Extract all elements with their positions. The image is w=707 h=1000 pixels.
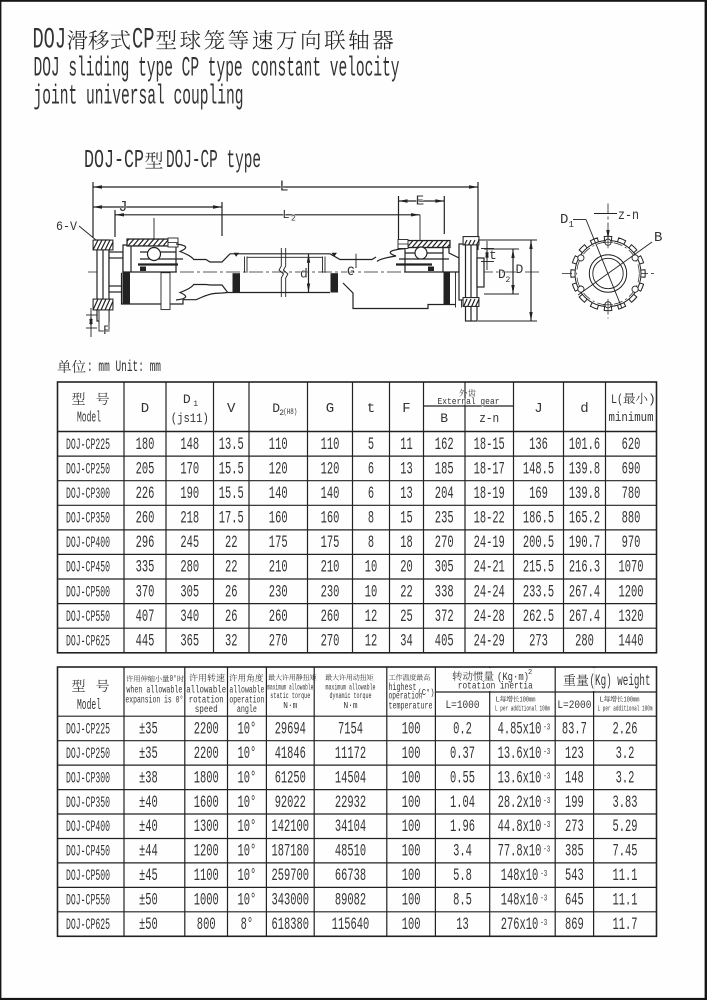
svg-text:24-24: 24-24 bbox=[474, 582, 505, 602]
svg-text:335: 335 bbox=[136, 558, 155, 578]
svg-text:1: 1 bbox=[569, 220, 574, 230]
svg-text:25: 25 bbox=[400, 607, 413, 627]
svg-text:±35: ±35 bbox=[139, 744, 158, 764]
svg-text:13: 13 bbox=[400, 484, 413, 504]
svg-text:temperature: temperature bbox=[389, 702, 433, 713]
svg-text:245: 245 bbox=[180, 533, 199, 553]
svg-text:169: 169 bbox=[529, 484, 548, 504]
svg-text:2.26: 2.26 bbox=[613, 719, 638, 739]
svg-text:15.5: 15.5 bbox=[219, 459, 244, 479]
svg-text:12: 12 bbox=[365, 632, 378, 652]
svg-text:273: 273 bbox=[565, 817, 584, 837]
svg-text:6: 6 bbox=[368, 459, 374, 479]
svg-text:L: L bbox=[282, 208, 289, 222]
svg-text:13: 13 bbox=[456, 915, 469, 935]
svg-text:110: 110 bbox=[269, 435, 288, 455]
svg-text:218: 218 bbox=[180, 509, 199, 529]
svg-text:-3: -3 bbox=[540, 918, 547, 928]
svg-text:G: G bbox=[326, 401, 334, 417]
svg-text:148x10: 148x10 bbox=[501, 866, 539, 886]
svg-text:10°: 10° bbox=[238, 793, 257, 813]
svg-text:DOJ-CP450: DOJ-CP450 bbox=[66, 559, 110, 577]
svg-text:13.6x10: 13.6x10 bbox=[498, 744, 542, 764]
svg-text:5.29: 5.29 bbox=[613, 817, 638, 837]
svg-text:13: 13 bbox=[400, 459, 413, 479]
svg-text:6: 6 bbox=[368, 484, 374, 504]
svg-text:160: 160 bbox=[321, 509, 340, 529]
svg-text:DOJ-CP300: DOJ-CP300 bbox=[66, 769, 110, 787]
svg-text:8.5: 8.5 bbox=[453, 891, 472, 911]
svg-text:t: t bbox=[489, 248, 497, 263]
svg-text:690: 690 bbox=[622, 459, 641, 479]
svg-text:±40: ±40 bbox=[139, 793, 158, 813]
svg-text:100: 100 bbox=[402, 817, 421, 837]
svg-text:1300: 1300 bbox=[194, 817, 219, 837]
svg-text:-3: -3 bbox=[543, 722, 550, 732]
svg-text:175: 175 bbox=[269, 533, 288, 553]
svg-text:190.7: 190.7 bbox=[569, 533, 600, 553]
svg-text:10°: 10° bbox=[238, 744, 257, 764]
svg-text:407: 407 bbox=[136, 607, 155, 627]
svg-text:1440: 1440 bbox=[619, 632, 644, 652]
svg-text:22: 22 bbox=[225, 533, 238, 553]
svg-text:L=2000: L=2000 bbox=[557, 700, 591, 712]
svg-text:372: 372 bbox=[435, 607, 454, 627]
svg-text:L: L bbox=[496, 697, 500, 705]
svg-text:22: 22 bbox=[225, 558, 238, 578]
svg-text:DOJ sliding type CP type const: DOJ sliding type CP type constant veloci… bbox=[34, 54, 400, 85]
svg-text:DOJ-CP350: DOJ-CP350 bbox=[66, 794, 110, 812]
svg-text:1: 1 bbox=[193, 400, 198, 409]
svg-text:±44: ±44 bbox=[139, 842, 158, 862]
svg-text:41846: 41846 bbox=[275, 744, 306, 764]
svg-text:Model: Model bbox=[77, 697, 101, 714]
svg-text:-3: -3 bbox=[543, 771, 550, 781]
svg-text:100: 100 bbox=[402, 719, 421, 739]
svg-text:±40: ±40 bbox=[139, 817, 158, 837]
svg-text:385: 385 bbox=[565, 842, 584, 862]
svg-text:10°: 10° bbox=[238, 891, 257, 911]
svg-text:120: 120 bbox=[321, 459, 340, 479]
svg-text:11: 11 bbox=[400, 435, 413, 455]
svg-text:34: 34 bbox=[400, 632, 413, 652]
svg-text:233.5: 233.5 bbox=[523, 582, 554, 602]
svg-text:162: 162 bbox=[435, 435, 454, 455]
svg-text:3.83: 3.83 bbox=[613, 793, 638, 813]
svg-text:445: 445 bbox=[136, 632, 155, 652]
svg-text:angle: angle bbox=[237, 704, 257, 716]
svg-text:24-21: 24-21 bbox=[474, 558, 505, 578]
svg-text:10°: 10° bbox=[238, 842, 257, 862]
svg-text:18: 18 bbox=[400, 533, 413, 553]
svg-text:1200: 1200 bbox=[619, 582, 644, 602]
svg-text:34104: 34104 bbox=[335, 817, 366, 837]
svg-text:24-28: 24-28 bbox=[474, 607, 505, 627]
svg-text:260: 260 bbox=[269, 607, 288, 627]
svg-text:d: d bbox=[300, 267, 308, 282]
svg-text:180: 180 bbox=[136, 435, 155, 455]
svg-text:DOJ: DOJ bbox=[33, 24, 67, 58]
svg-text:3.2: 3.2 bbox=[616, 768, 635, 788]
svg-text:780: 780 bbox=[622, 484, 641, 504]
svg-text:543: 543 bbox=[565, 866, 584, 886]
svg-text:230: 230 bbox=[269, 582, 288, 602]
svg-text:t: t bbox=[367, 401, 375, 417]
svg-text:expansion is 0°: expansion is 0° bbox=[125, 695, 183, 707]
svg-text:210: 210 bbox=[321, 558, 340, 578]
svg-text:z-n: z-n bbox=[618, 208, 639, 224]
svg-text:(js11): (js11) bbox=[171, 411, 209, 426]
svg-text:DOJ-CP250: DOJ-CP250 bbox=[66, 745, 110, 763]
svg-text:0°: 0° bbox=[170, 674, 177, 684]
svg-text:1070: 1070 bbox=[619, 558, 644, 578]
svg-text:101.6: 101.6 bbox=[569, 435, 600, 455]
svg-text:15.5: 15.5 bbox=[219, 484, 244, 504]
svg-text:B: B bbox=[654, 230, 662, 246]
svg-text:280: 280 bbox=[575, 632, 594, 652]
svg-text:142100: 142100 bbox=[272, 817, 310, 837]
svg-text:110: 110 bbox=[321, 435, 340, 455]
svg-text:280: 280 bbox=[180, 558, 199, 578]
svg-text:148.5: 148.5 bbox=[523, 459, 554, 479]
svg-text:18-15: 18-15 bbox=[474, 435, 505, 455]
svg-text:262.5: 262.5 bbox=[523, 607, 554, 627]
svg-text:10°: 10° bbox=[238, 719, 257, 739]
svg-text:136: 136 bbox=[529, 435, 548, 455]
svg-text:(Kg) weight: (Kg) weight bbox=[590, 672, 651, 690]
svg-text:100mm: 100mm bbox=[520, 697, 536, 705]
svg-text:8°: 8° bbox=[241, 915, 254, 935]
svg-text:10°: 10° bbox=[238, 768, 257, 788]
svg-text:1200: 1200 bbox=[194, 842, 219, 862]
svg-text:230: 230 bbox=[321, 582, 340, 602]
svg-text:270: 270 bbox=[321, 632, 340, 652]
svg-text:10: 10 bbox=[365, 558, 378, 578]
svg-text:210: 210 bbox=[269, 558, 288, 578]
svg-text:140: 140 bbox=[269, 484, 288, 504]
svg-text:100: 100 bbox=[402, 842, 421, 862]
svg-text:10°: 10° bbox=[238, 866, 257, 886]
svg-text:186.5: 186.5 bbox=[523, 509, 554, 529]
svg-text:2: 2 bbox=[291, 215, 296, 224]
svg-text:270: 270 bbox=[269, 632, 288, 652]
svg-text:44.8x10: 44.8x10 bbox=[498, 817, 542, 837]
svg-text:618380: 618380 bbox=[272, 915, 310, 935]
svg-text:14504: 14504 bbox=[335, 768, 366, 788]
svg-text:259700: 259700 bbox=[272, 866, 310, 886]
svg-text:18-22: 18-22 bbox=[474, 509, 505, 529]
svg-text:17.5: 17.5 bbox=[219, 509, 244, 529]
svg-text:1000: 1000 bbox=[194, 891, 219, 911]
svg-text:370: 370 bbox=[136, 582, 155, 602]
svg-text:11.1: 11.1 bbox=[613, 891, 638, 911]
svg-text:100: 100 bbox=[402, 793, 421, 813]
svg-text:2200: 2200 bbox=[194, 719, 219, 739]
svg-text:61250: 61250 bbox=[275, 768, 306, 788]
svg-text:645: 645 bbox=[565, 891, 584, 911]
svg-text:970: 970 bbox=[622, 533, 641, 553]
svg-text:260: 260 bbox=[136, 509, 155, 529]
svg-text:1.96: 1.96 bbox=[450, 817, 475, 837]
svg-text:100: 100 bbox=[402, 866, 421, 886]
svg-text:26: 26 bbox=[225, 582, 238, 602]
svg-text:2: 2 bbox=[506, 276, 511, 285]
svg-text:5.8: 5.8 bbox=[453, 866, 472, 886]
svg-text:13.5: 13.5 bbox=[219, 435, 244, 455]
svg-text:N·m: N·m bbox=[283, 701, 297, 711]
svg-text:13.6x10: 13.6x10 bbox=[498, 768, 542, 788]
svg-text:11.1: 11.1 bbox=[613, 866, 638, 886]
svg-text:12: 12 bbox=[365, 607, 378, 627]
svg-text:216.3: 216.3 bbox=[569, 558, 600, 578]
svg-text:2: 2 bbox=[528, 669, 532, 677]
svg-text:±38: ±38 bbox=[139, 768, 158, 788]
svg-text:20: 20 bbox=[400, 558, 413, 578]
svg-text:340: 340 bbox=[180, 607, 199, 627]
svg-text:±45: ±45 bbox=[139, 866, 158, 886]
svg-text:205: 205 bbox=[136, 459, 155, 479]
svg-text:1600: 1600 bbox=[194, 793, 219, 813]
svg-text:260: 260 bbox=[321, 607, 340, 627]
svg-text:): ) bbox=[648, 392, 656, 407]
svg-text:-3: -3 bbox=[540, 869, 547, 879]
svg-text:365: 365 bbox=[180, 632, 199, 652]
svg-text:139.8: 139.8 bbox=[569, 484, 600, 504]
svg-text:3.2: 3.2 bbox=[616, 744, 635, 764]
svg-text:148: 148 bbox=[565, 768, 584, 788]
svg-text:DOJ-CP300: DOJ-CP300 bbox=[66, 485, 110, 503]
svg-text:-3: -3 bbox=[540, 894, 547, 904]
svg-text:10°: 10° bbox=[238, 817, 257, 837]
svg-text:215.5: 215.5 bbox=[523, 558, 554, 578]
svg-text:199: 199 bbox=[565, 793, 584, 813]
svg-text:L: L bbox=[279, 179, 288, 196]
svg-text:DOJ-CP400: DOJ-CP400 bbox=[66, 534, 110, 552]
svg-text:rotation inertia: rotation inertia bbox=[458, 681, 533, 693]
svg-text:±35: ±35 bbox=[139, 719, 158, 739]
svg-text:-3: -3 bbox=[543, 845, 550, 855]
svg-text:6-V: 6-V bbox=[56, 219, 77, 234]
svg-text:F: F bbox=[402, 401, 410, 417]
svg-text:204: 204 bbox=[435, 484, 454, 504]
svg-text:0.37: 0.37 bbox=[450, 744, 475, 764]
svg-text:160: 160 bbox=[269, 509, 288, 529]
svg-text:joint universal coupling: joint universal coupling bbox=[34, 82, 244, 113]
svg-text:3.4: 3.4 bbox=[453, 842, 472, 862]
svg-text:83.7: 83.7 bbox=[562, 719, 587, 739]
svg-text:L per additional 100m: L per additional 100m bbox=[495, 706, 550, 714]
svg-text:18-19: 18-19 bbox=[474, 484, 505, 504]
svg-text:235: 235 bbox=[435, 509, 454, 529]
svg-text:Model: Model bbox=[77, 410, 101, 427]
svg-text:620: 620 bbox=[622, 435, 641, 455]
svg-text:123: 123 bbox=[565, 744, 584, 764]
svg-text:D: D bbox=[183, 392, 191, 407]
svg-text:226: 226 bbox=[136, 484, 155, 504]
svg-text:1800: 1800 bbox=[194, 768, 219, 788]
svg-text:8: 8 bbox=[368, 533, 374, 553]
svg-text:L per additional 100m: L per additional 100m bbox=[598, 706, 653, 714]
svg-text:F: F bbox=[103, 323, 111, 338]
svg-text:148: 148 bbox=[180, 435, 199, 455]
svg-text:140: 140 bbox=[321, 484, 340, 504]
svg-text:DOJ-CP400: DOJ-CP400 bbox=[66, 818, 110, 836]
svg-text:100: 100 bbox=[402, 744, 421, 764]
svg-text:static torque: static torque bbox=[270, 691, 310, 701]
svg-text:dynamic torque: dynamic torque bbox=[330, 691, 372, 701]
svg-text:DOJ-CP450: DOJ-CP450 bbox=[66, 843, 110, 861]
svg-text:305: 305 bbox=[180, 582, 199, 602]
svg-text:DOJ-CP350: DOJ-CP350 bbox=[66, 510, 110, 528]
svg-text:DOJ-CP225: DOJ-CP225 bbox=[66, 436, 110, 454]
svg-text:z-n: z-n bbox=[479, 411, 499, 426]
svg-text:100: 100 bbox=[402, 891, 421, 911]
svg-text:187180: 187180 bbox=[272, 842, 310, 862]
svg-text:E: E bbox=[416, 194, 424, 210]
svg-text:D: D bbox=[141, 401, 149, 417]
svg-text:24-19: 24-19 bbox=[474, 533, 505, 553]
svg-text:(C°): (C°) bbox=[418, 687, 435, 698]
svg-text:DOJ-CP500: DOJ-CP500 bbox=[66, 583, 110, 601]
svg-text:115640: 115640 bbox=[332, 915, 370, 935]
svg-text:7.45: 7.45 bbox=[613, 842, 638, 862]
svg-text:DOJ-CP550: DOJ-CP550 bbox=[66, 892, 110, 910]
svg-text:10: 10 bbox=[365, 582, 378, 602]
svg-text:267.4: 267.4 bbox=[569, 607, 600, 627]
svg-text:7154: 7154 bbox=[338, 719, 363, 739]
svg-text:J: J bbox=[534, 401, 542, 417]
svg-text:DOJ-CP625: DOJ-CP625 bbox=[66, 633, 110, 651]
svg-text:L(: L( bbox=[611, 392, 623, 407]
svg-text:165.2: 165.2 bbox=[569, 509, 600, 529]
svg-text:5: 5 bbox=[368, 435, 374, 455]
svg-text:270: 270 bbox=[435, 533, 454, 553]
svg-text:170: 170 bbox=[180, 459, 199, 479]
svg-text:DOJ-CP625: DOJ-CP625 bbox=[66, 916, 110, 934]
svg-text:338: 338 bbox=[435, 582, 454, 602]
svg-text:-3: -3 bbox=[543, 796, 550, 806]
svg-text:1100: 1100 bbox=[194, 866, 219, 886]
svg-text:±50: ±50 bbox=[139, 891, 158, 911]
svg-text:92022: 92022 bbox=[275, 793, 306, 813]
svg-text:89082: 89082 bbox=[335, 891, 366, 911]
svg-text:32: 32 bbox=[225, 632, 238, 652]
svg-text:296: 296 bbox=[136, 533, 155, 553]
svg-text:11.7: 11.7 bbox=[613, 915, 638, 935]
svg-text:V: V bbox=[227, 401, 236, 417]
svg-text:L: L bbox=[600, 697, 604, 705]
svg-text:L=1000: L=1000 bbox=[446, 700, 480, 712]
svg-text:148x10: 148x10 bbox=[501, 891, 539, 911]
svg-text:DOJ-CP type: DOJ-CP type bbox=[166, 145, 261, 175]
svg-text:15: 15 bbox=[400, 509, 413, 529]
svg-text:DOJ-CP: DOJ-CP bbox=[84, 145, 144, 175]
svg-text:-3: -3 bbox=[543, 820, 550, 830]
svg-text:100: 100 bbox=[402, 768, 421, 788]
svg-text:N·m: N·m bbox=[344, 701, 358, 711]
svg-text:DOJ-CP250: DOJ-CP250 bbox=[66, 460, 110, 478]
svg-text:2200: 2200 bbox=[194, 744, 219, 764]
svg-text:28.2x10: 28.2x10 bbox=[498, 793, 542, 813]
svg-text:405: 405 bbox=[435, 632, 454, 652]
svg-text:CP: CP bbox=[132, 24, 155, 58]
svg-text:175: 175 bbox=[321, 533, 340, 553]
svg-text:267.4: 267.4 bbox=[569, 582, 600, 602]
svg-text:800: 800 bbox=[197, 915, 216, 935]
svg-text:29694: 29694 bbox=[275, 719, 306, 739]
svg-text:869: 869 bbox=[565, 915, 584, 935]
svg-text:4.85x10: 4.85x10 bbox=[498, 719, 542, 739]
svg-text:8: 8 bbox=[368, 509, 374, 529]
svg-text:305: 305 bbox=[435, 558, 454, 578]
svg-text:D: D bbox=[516, 262, 524, 277]
svg-text:120: 120 bbox=[269, 459, 288, 479]
svg-text:22932: 22932 bbox=[335, 793, 366, 813]
svg-text:11172: 11172 bbox=[335, 744, 366, 764]
svg-text:880: 880 bbox=[622, 509, 641, 529]
svg-text:22: 22 bbox=[400, 582, 413, 602]
svg-text:276x10: 276x10 bbox=[501, 915, 539, 935]
svg-text:343000: 343000 bbox=[272, 891, 310, 911]
svg-text:139.8: 139.8 bbox=[569, 459, 600, 479]
svg-text:190: 190 bbox=[180, 484, 199, 504]
svg-text:(H8): (H8) bbox=[283, 408, 297, 417]
svg-text:18-17: 18-17 bbox=[474, 459, 505, 479]
svg-text:26: 26 bbox=[225, 607, 238, 627]
svg-text:273: 273 bbox=[529, 632, 548, 652]
svg-text:100: 100 bbox=[402, 915, 421, 935]
svg-text:D: D bbox=[560, 212, 568, 228]
svg-text:0.55: 0.55 bbox=[450, 768, 475, 788]
svg-text:DOJ-CP500: DOJ-CP500 bbox=[66, 867, 110, 885]
svg-text:minimum: minimum bbox=[609, 410, 654, 425]
svg-text:100mm: 100mm bbox=[624, 697, 640, 705]
svg-text:DOJ-CP550: DOJ-CP550 bbox=[66, 608, 110, 626]
svg-text:185: 185 bbox=[435, 459, 454, 479]
svg-text:: mm Unit: mm: : mm Unit: mm bbox=[87, 358, 161, 376]
svg-text:DOJ-CP225: DOJ-CP225 bbox=[66, 720, 110, 738]
svg-text:200.5: 200.5 bbox=[523, 533, 554, 553]
svg-text:d: d bbox=[580, 401, 588, 417]
svg-text:66738: 66738 bbox=[335, 866, 366, 886]
svg-text:speed: speed bbox=[195, 704, 218, 716]
svg-text:48510: 48510 bbox=[335, 842, 366, 862]
svg-text:1320: 1320 bbox=[619, 607, 644, 627]
svg-text:±50: ±50 bbox=[139, 915, 158, 935]
svg-text:0.2: 0.2 bbox=[453, 719, 472, 739]
svg-text:1.04: 1.04 bbox=[450, 793, 475, 813]
svg-text:B: B bbox=[440, 411, 448, 426]
svg-text:-3: -3 bbox=[543, 747, 550, 757]
svg-text:24-29: 24-29 bbox=[474, 632, 505, 652]
svg-text:77.8x10: 77.8x10 bbox=[498, 842, 542, 862]
svg-text:External gear: External gear bbox=[438, 397, 500, 407]
